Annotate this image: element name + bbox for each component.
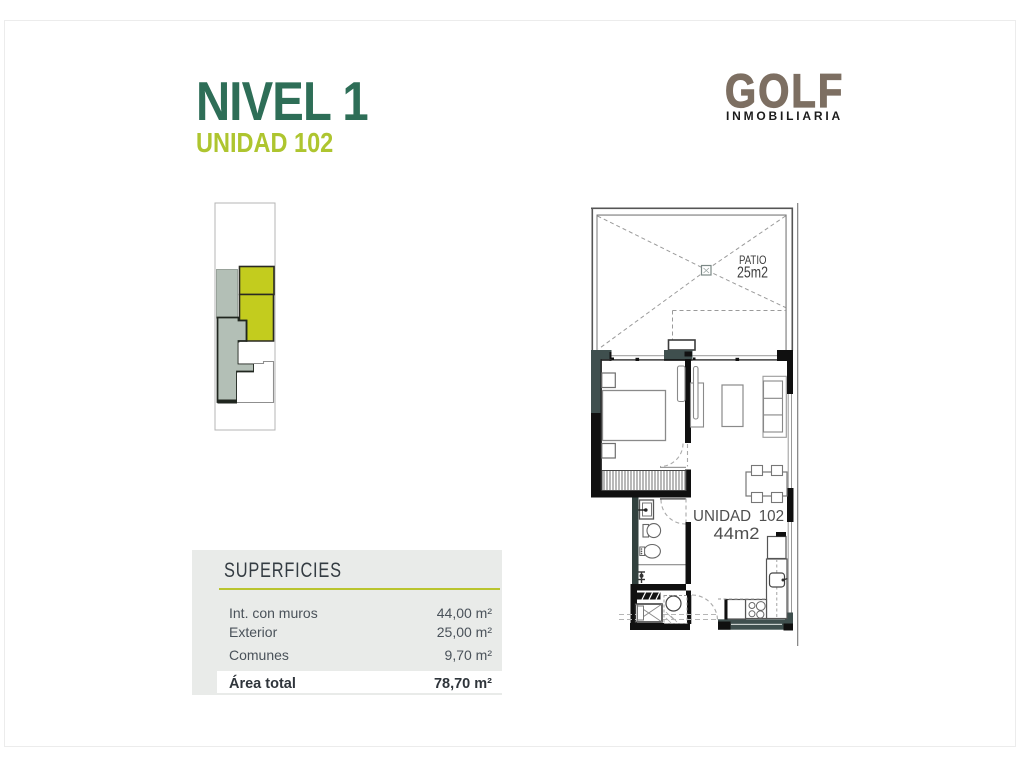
svg-text:UNIDAD 102: UNIDAD 102 bbox=[693, 508, 784, 525]
svg-text:25m2: 25m2 bbox=[737, 265, 768, 282]
svg-text:44m2: 44m2 bbox=[714, 524, 760, 543]
